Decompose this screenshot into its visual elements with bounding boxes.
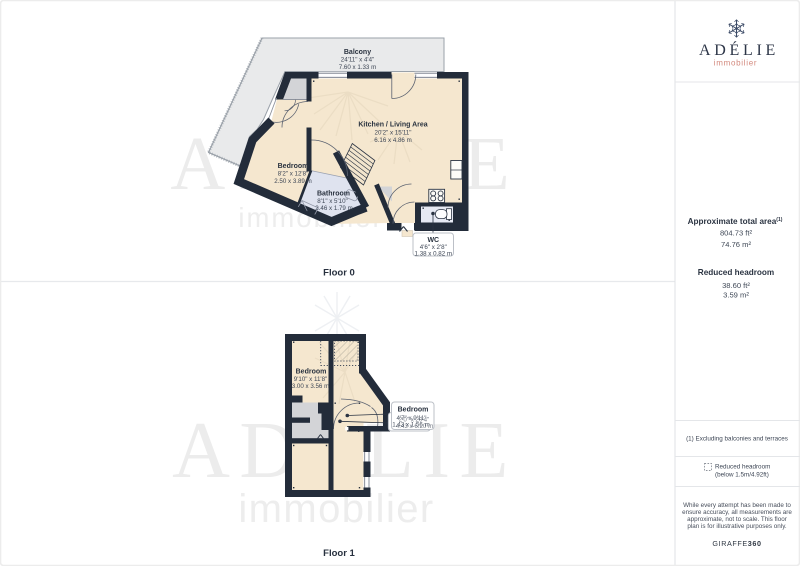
svg-text:ADÉLIE: ADÉLIE bbox=[699, 40, 779, 59]
svg-text:While every attempt has been m: While every attempt has been made to bbox=[683, 502, 791, 509]
svg-text:WC: WC bbox=[427, 237, 439, 244]
svg-text:Bedroom: Bedroom bbox=[278, 163, 309, 170]
svg-text:Floor 1: Floor 1 bbox=[323, 548, 355, 559]
svg-text:Balcony: Balcony bbox=[344, 49, 371, 56]
svg-text:Floor 0: Floor 0 bbox=[323, 268, 355, 279]
svg-text:Approximate total area(1): Approximate total area(1) bbox=[688, 217, 783, 226]
svg-text:(below 1.5m/4.92ft): (below 1.5m/4.92ft) bbox=[715, 472, 769, 479]
svg-text:Reduced headroom: Reduced headroom bbox=[715, 464, 770, 471]
svg-text:4.43 x 6.20 m: 4.43 x 6.20 m bbox=[396, 423, 434, 430]
svg-text:2.50 x 3.89 m: 2.50 x 3.89 m bbox=[274, 178, 312, 185]
svg-text:6.16 x 4.86 m: 6.16 x 4.86 m bbox=[374, 137, 412, 144]
svg-text:GIRAFFE360: GIRAFFE360 bbox=[712, 539, 761, 548]
svg-text:1.38 x 0.82 m: 1.38 x 0.82 m bbox=[415, 250, 453, 257]
svg-text:Reduced headroom: Reduced headroom bbox=[698, 268, 774, 277]
svg-text:immobilier: immobilier bbox=[714, 59, 757, 68]
svg-text:3.59 m²: 3.59 m² bbox=[723, 291, 749, 300]
svg-text:804.73 ft²: 804.73 ft² bbox=[720, 229, 753, 238]
svg-text:plan is for illustrative purpo: plan is for illustrative purposes only. bbox=[687, 523, 787, 530]
svg-text:24'11" x 4'4": 24'11" x 4'4" bbox=[341, 57, 374, 64]
svg-text:8'2" x 12'8": 8'2" x 12'8" bbox=[278, 171, 309, 178]
svg-text:7.60 x 1.33 m: 7.60 x 1.33 m bbox=[339, 64, 377, 71]
svg-text:Bathroom: Bathroom bbox=[317, 191, 350, 198]
svg-text:38.60 ft²: 38.60 ft² bbox=[722, 281, 750, 290]
svg-text:Bedroom: Bedroom bbox=[398, 407, 429, 414]
svg-text:Bedroom: Bedroom bbox=[296, 369, 327, 376]
svg-text:8'1" x 5'10": 8'1" x 5'10" bbox=[317, 198, 348, 205]
svg-text:3.00 x 3.56 m: 3.00 x 3.56 m bbox=[292, 383, 330, 390]
svg-text:approximate, not to scale. Thi: approximate, not to scale. This floor bbox=[687, 516, 787, 523]
svg-text:74.76 m²: 74.76 m² bbox=[721, 240, 751, 249]
svg-text:9'10" x 11'8": 9'10" x 11'8" bbox=[294, 376, 327, 383]
svg-text:(1) Excluding balconies and te: (1) Excluding balconies and terraces bbox=[686, 436, 788, 443]
svg-text:ensure accuracy, all measureme: ensure accuracy, all measurements are bbox=[682, 509, 792, 516]
svg-text:20'2" x 15'11": 20'2" x 15'11" bbox=[375, 130, 412, 137]
svg-text:Kitchen / Living Area: Kitchen / Living Area bbox=[358, 122, 427, 129]
svg-text:2.46 x 1.79 m: 2.46 x 1.79 m bbox=[315, 205, 353, 212]
